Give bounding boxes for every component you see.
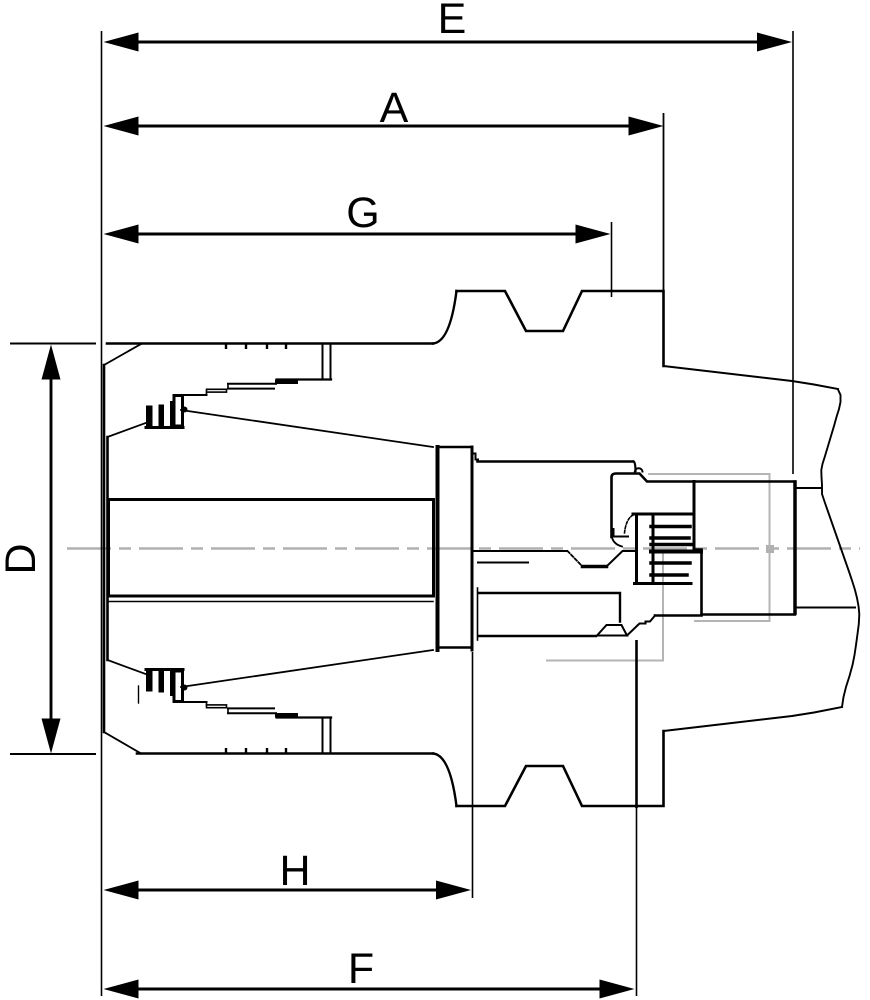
svg-text:E: E bbox=[438, 0, 467, 43]
svg-text:D: D bbox=[0, 543, 45, 574]
svg-text:A: A bbox=[380, 84, 409, 132]
svg-text:F: F bbox=[348, 945, 374, 993]
svg-text:H: H bbox=[279, 847, 310, 895]
svg-text:G: G bbox=[346, 189, 379, 237]
